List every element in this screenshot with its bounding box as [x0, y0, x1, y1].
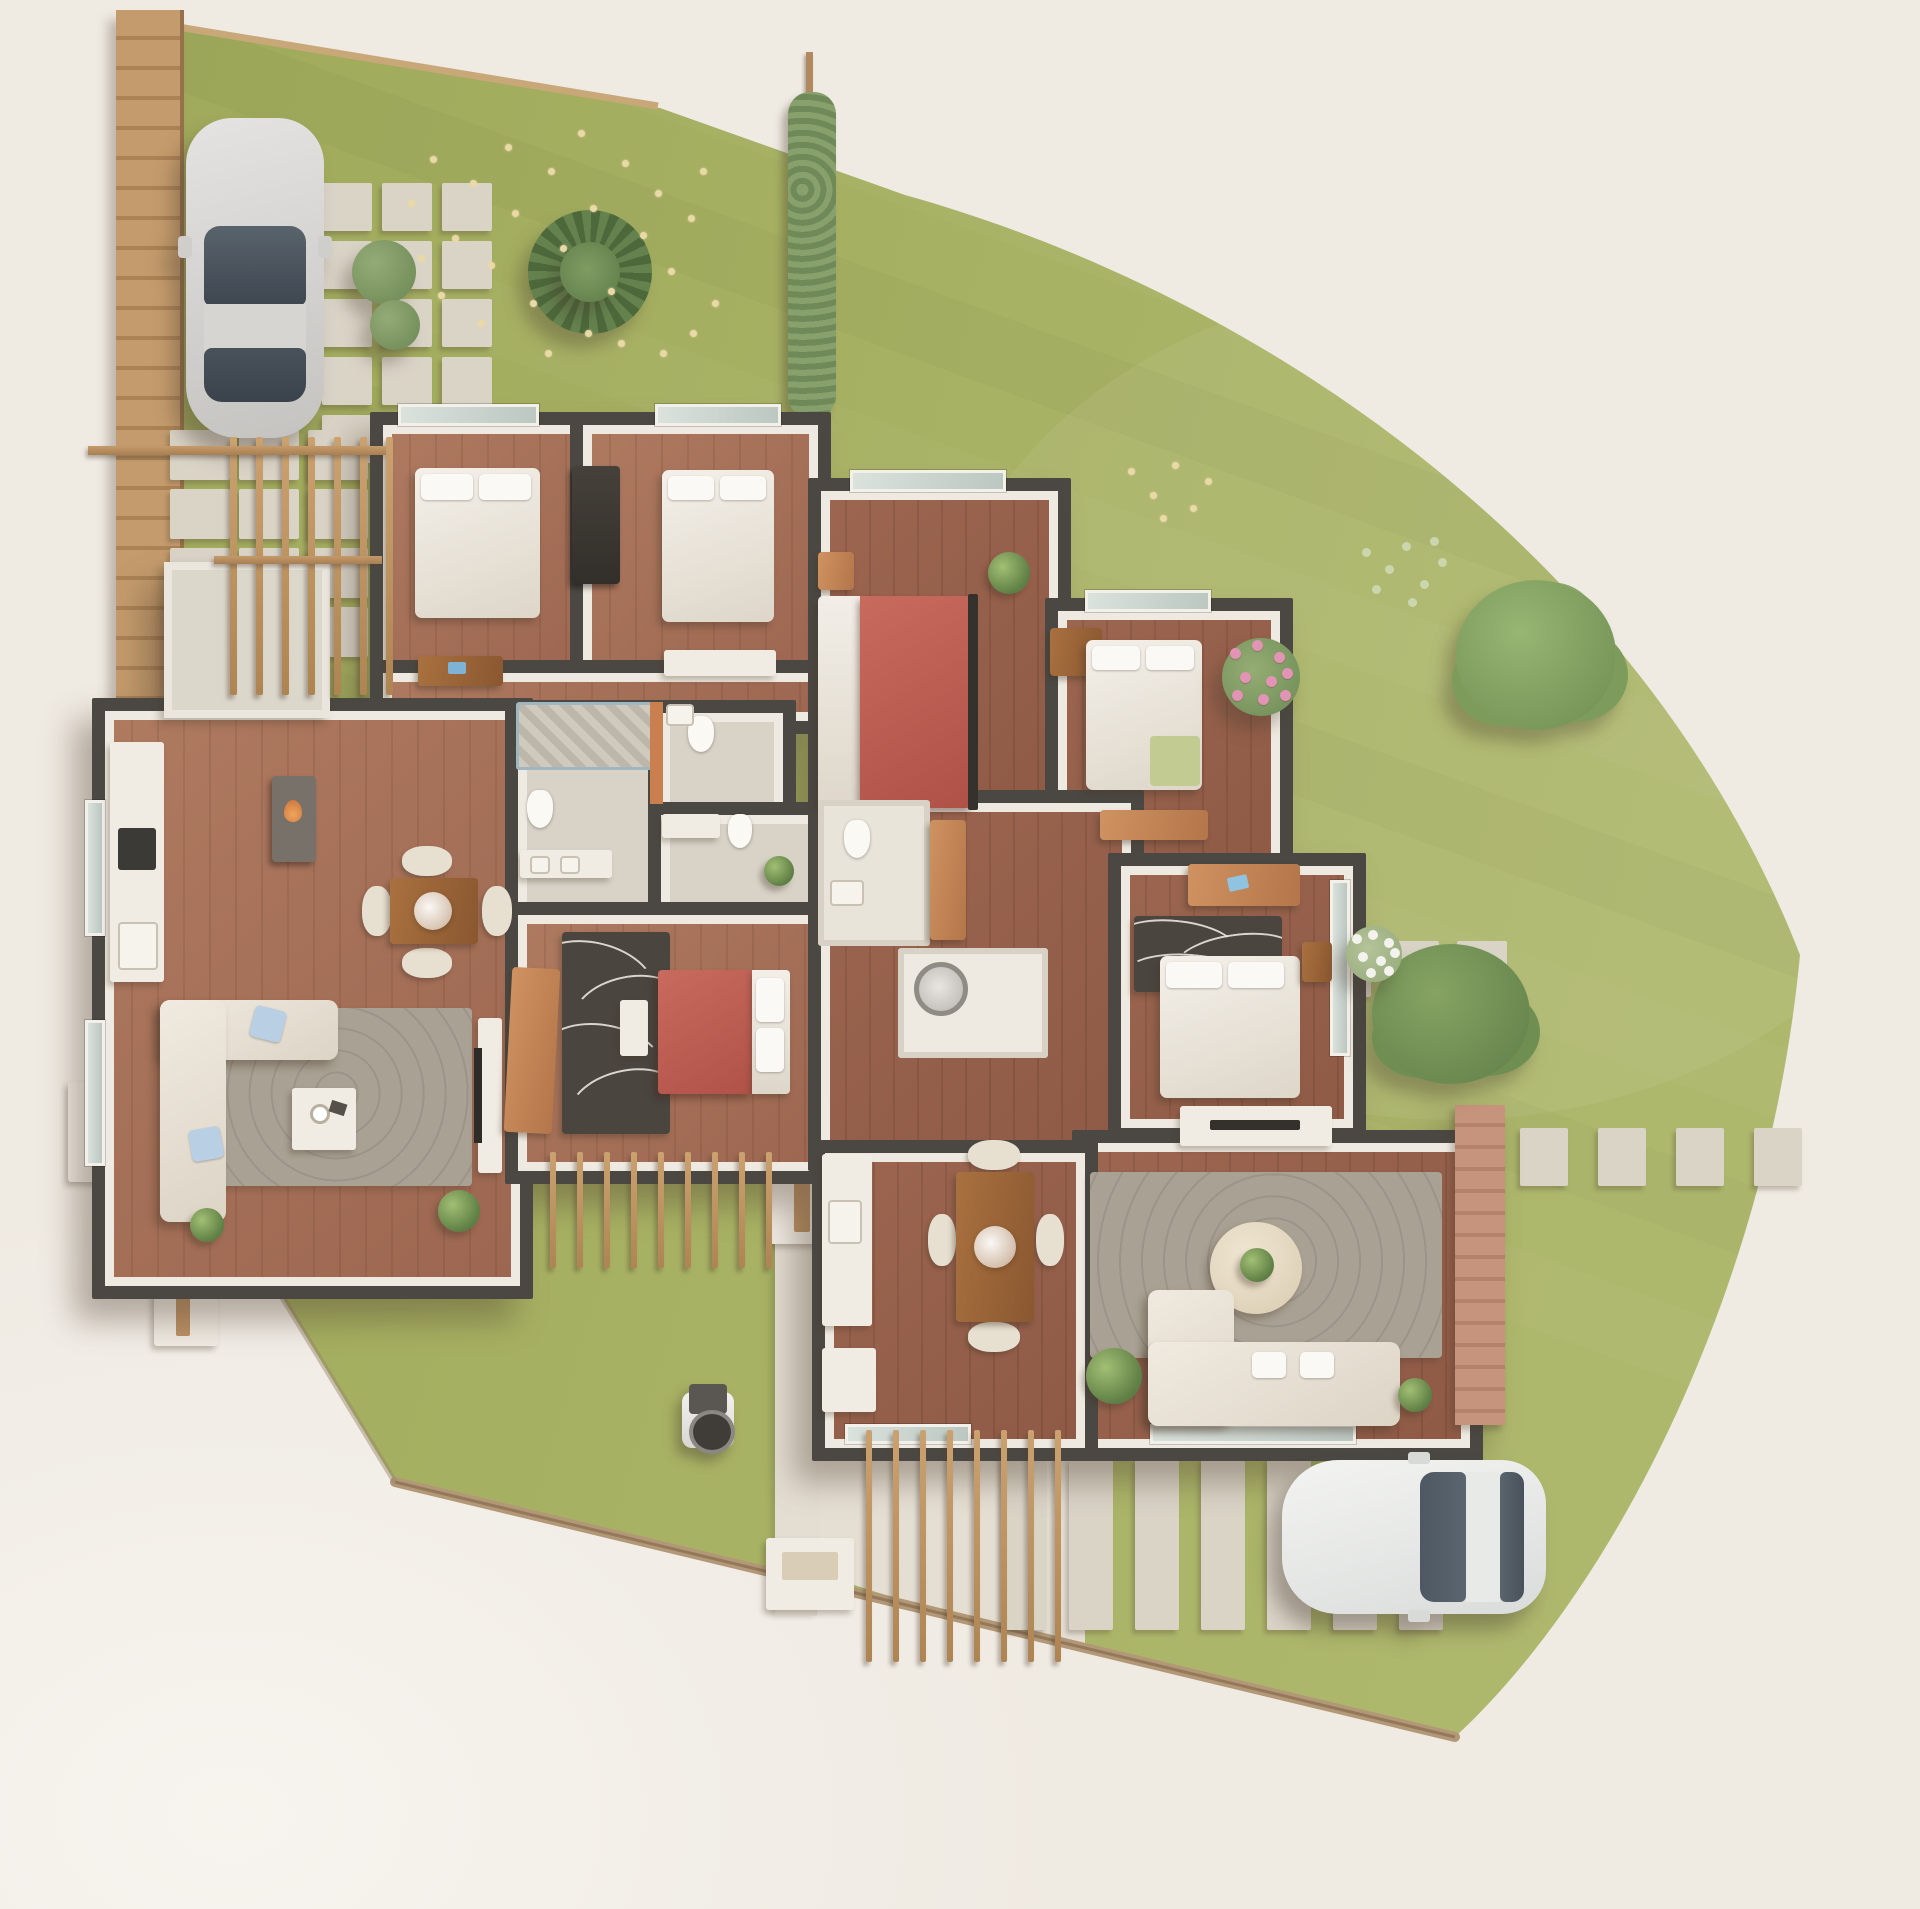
cooktop-unit-a	[118, 828, 156, 870]
flower-speck	[712, 300, 719, 307]
sofa-unit-a-left-side	[160, 1000, 226, 1222]
car-white-south	[1282, 1460, 1546, 1614]
flower-speck	[668, 268, 675, 275]
grass-sprig	[1420, 580, 1429, 589]
dining-chair	[402, 846, 452, 876]
pergola-south-unit-a-slat	[739, 1152, 745, 1268]
window-unit-a-bedroom-2	[655, 404, 781, 426]
flower-speck	[1150, 492, 1157, 499]
pink-flower	[1280, 690, 1291, 701]
dining-chair	[968, 1322, 1020, 1352]
pillow	[720, 476, 766, 500]
flower-speck	[660, 350, 667, 357]
pergola-driveway-slat	[947, 1430, 953, 1662]
dining-chair	[402, 948, 452, 978]
table-plant-unit-b	[1240, 1248, 1274, 1282]
flower-speck	[1190, 505, 1197, 512]
pillow	[1228, 962, 1284, 988]
toilet-bath2-unit-a	[728, 814, 752, 848]
window-unit-b-bedroom-2	[1085, 590, 1211, 612]
pergola-northwest-slat	[386, 437, 393, 695]
pergola-northwest-slat	[230, 437, 237, 695]
pergola-northwest-slat	[256, 437, 263, 695]
flower-speck	[688, 215, 695, 222]
window-unit-b-bedroom-red	[850, 470, 1006, 492]
flower-speck	[470, 180, 477, 187]
flower-speck	[452, 235, 459, 242]
pergola-northwest-slat	[308, 437, 315, 695]
flower-speck	[560, 245, 567, 252]
pink-flower	[1282, 668, 1293, 679]
shrub	[370, 300, 420, 350]
pergola-south-unit-a-slat	[577, 1152, 583, 1268]
pendant-lamp-unit-a	[414, 892, 452, 930]
grass-sprig	[1430, 537, 1439, 546]
bed-unit-b-red-mattress	[818, 596, 860, 808]
flower-speck	[545, 350, 552, 357]
pergola-south-unit-a-slat	[604, 1152, 610, 1268]
pergola-south-unit-a-slat	[685, 1152, 691, 1268]
bathroom-unit-b	[818, 800, 930, 946]
flower-speck	[578, 130, 585, 137]
nightstand-unit-a-master	[620, 1000, 648, 1056]
pergola-driveway-slat	[1055, 1430, 1061, 1662]
window-unit-a-bedroom-1	[398, 404, 539, 426]
grass-sprig	[1385, 565, 1394, 574]
wardrobe-unit-a-bedroom-2	[572, 466, 620, 584]
pink-flower	[1240, 672, 1251, 683]
flower-speck	[690, 330, 697, 337]
laptop-icon	[448, 662, 466, 674]
tv-screen-unit-b	[1210, 1120, 1300, 1130]
headboard-unit-b-red	[968, 594, 978, 810]
pergola-south-unit-a-slat	[658, 1152, 664, 1268]
bathroom-plant	[764, 856, 794, 886]
flower-speck	[512, 210, 519, 217]
unit-a-entry-porch	[164, 562, 330, 718]
pillow	[668, 476, 714, 500]
flower-speck	[700, 168, 707, 175]
white-flower	[1376, 956, 1386, 966]
sink-unit-b	[830, 880, 864, 906]
wc-accent-wall-unit-a	[650, 702, 663, 804]
washing-machine	[914, 962, 968, 1016]
shower-unit-a	[516, 702, 658, 770]
floor-plant-unit-b-2	[1398, 1378, 1432, 1412]
pergola-beam	[88, 446, 386, 455]
wave-rug-unit-a-master	[562, 932, 670, 1134]
car-silver-north	[186, 118, 324, 438]
vanity-bath2-unit-a	[662, 814, 720, 838]
window-unit-b-living-south	[1150, 1424, 1356, 1444]
pergola-driveway-slat	[1028, 1430, 1034, 1662]
nightstand-unit-b-red	[818, 552, 854, 590]
flower-speck	[655, 190, 662, 197]
flower-speck	[438, 292, 445, 299]
window-unit-a-living-west-1	[85, 800, 105, 936]
flower-speck	[418, 255, 425, 262]
window-unit-b-bedroom-3-east	[1330, 880, 1350, 1056]
pillow	[756, 1028, 784, 1072]
grass-sprig	[1438, 558, 1447, 567]
window-unit-a-living-west-2	[85, 1020, 105, 1166]
flower-speck	[430, 156, 437, 163]
tv-screen-unit-a	[474, 1048, 482, 1143]
dining-chair	[1036, 1214, 1064, 1266]
basin	[560, 856, 580, 874]
flower-speck	[530, 300, 537, 307]
pergola-south-unit-a-slat	[631, 1152, 637, 1268]
pergola-northwest-slat	[282, 437, 289, 695]
pillow	[421, 474, 473, 500]
bed-unit-a-master-red	[658, 970, 752, 1094]
fireplace-flame-icon	[284, 800, 302, 822]
flower-speck	[618, 340, 625, 347]
flower-speck	[478, 320, 485, 327]
grass-sprig	[1362, 548, 1371, 557]
tree-northeast	[1456, 580, 1616, 730]
white-flower	[1384, 966, 1394, 976]
pergola-driveway-slat	[866, 1430, 872, 1662]
pink-flower	[1266, 676, 1277, 687]
vanity-unit-a-bedroom-2	[664, 650, 776, 676]
white-flower	[1390, 948, 1400, 958]
white-flower	[1366, 968, 1376, 978]
pink-flower	[1258, 694, 1269, 705]
white-flower	[1368, 930, 1378, 940]
grass-sprig	[1402, 542, 1411, 551]
floor-plant-unit-b	[1086, 1348, 1142, 1404]
robot-lawn-mower	[680, 1384, 736, 1450]
pillow	[1146, 646, 1194, 670]
shrub	[352, 240, 416, 304]
flower-speck	[590, 205, 597, 212]
dresser-unit-a-master	[504, 967, 561, 1134]
pergola-south-unit-a-slat	[550, 1152, 556, 1268]
hall-bench-unit-b	[930, 820, 966, 940]
white-flower	[1384, 938, 1394, 948]
pink-flower	[1230, 648, 1241, 659]
toilet-unit-a	[527, 790, 553, 828]
flower-speck	[505, 144, 512, 151]
potted-plant	[190, 1208, 224, 1242]
blue-pillow	[187, 1125, 224, 1162]
nightstand-unit-b-bedroom-3	[1302, 942, 1332, 982]
flower-speck	[488, 262, 495, 269]
flower-speck	[585, 330, 592, 337]
green-throw-blanket	[1150, 736, 1200, 786]
flower-speck	[1205, 478, 1212, 485]
flower-speck	[548, 168, 555, 175]
dining-chair	[968, 1140, 1020, 1170]
dining-chair	[362, 886, 392, 936]
pergola-driveway-slat	[1001, 1430, 1007, 1662]
flower-speck	[622, 160, 629, 167]
white-flower	[1352, 934, 1362, 944]
dining-chair	[482, 886, 512, 936]
pillow	[1166, 962, 1222, 988]
pergola-beam	[214, 556, 382, 564]
site-plan-scene	[0, 0, 1920, 1909]
flower-speck	[1128, 468, 1135, 475]
pillow	[1252, 1352, 1286, 1378]
flower-speck	[408, 200, 415, 207]
pergola-northwest-slat	[334, 437, 341, 695]
pergola-driveway-slat	[893, 1430, 899, 1662]
dining-chair	[928, 1214, 956, 1266]
pink-flower	[1232, 690, 1243, 701]
flower-speck	[1160, 515, 1167, 522]
flower-speck	[1172, 462, 1179, 469]
pendant-lamp-unit-b	[974, 1226, 1016, 1268]
sink-wc-unit-a	[666, 704, 694, 726]
pink-flower	[1274, 652, 1285, 663]
pillow	[1092, 646, 1140, 670]
corner-plant-unit-b-red	[988, 552, 1030, 594]
pillow	[479, 474, 531, 500]
flower-speck	[640, 232, 647, 239]
pergola-driveway-slat	[920, 1430, 926, 1662]
pergola-driveway-slat	[974, 1430, 980, 1662]
pergola-south-unit-a-slat	[766, 1152, 772, 1268]
pillow	[756, 978, 784, 1022]
pergola-northwest-slat	[360, 437, 367, 695]
bench-unit-b-bedroom-2	[1100, 810, 1208, 840]
kitchen-cabinet-unit-b	[822, 1348, 876, 1412]
grass-sprig	[1408, 598, 1417, 607]
pergola-south-unit-a-slat	[712, 1152, 718, 1268]
potted-plant	[438, 1190, 480, 1232]
bed-unit-b-red-duvet	[860, 596, 972, 808]
toilet-unit-b	[844, 820, 870, 858]
flower-speck	[608, 288, 615, 295]
unit-b-east-deck	[1455, 1105, 1505, 1425]
pink-flower	[1252, 640, 1263, 651]
white-flower	[1358, 952, 1368, 962]
basin	[530, 856, 550, 874]
pillow	[1300, 1352, 1334, 1378]
kitchen-sink-unit-a	[118, 922, 158, 970]
kitchen-sink-unit-b	[828, 1200, 862, 1244]
coffee-cup-icon	[310, 1104, 330, 1124]
grass-sprig	[1372, 585, 1381, 594]
